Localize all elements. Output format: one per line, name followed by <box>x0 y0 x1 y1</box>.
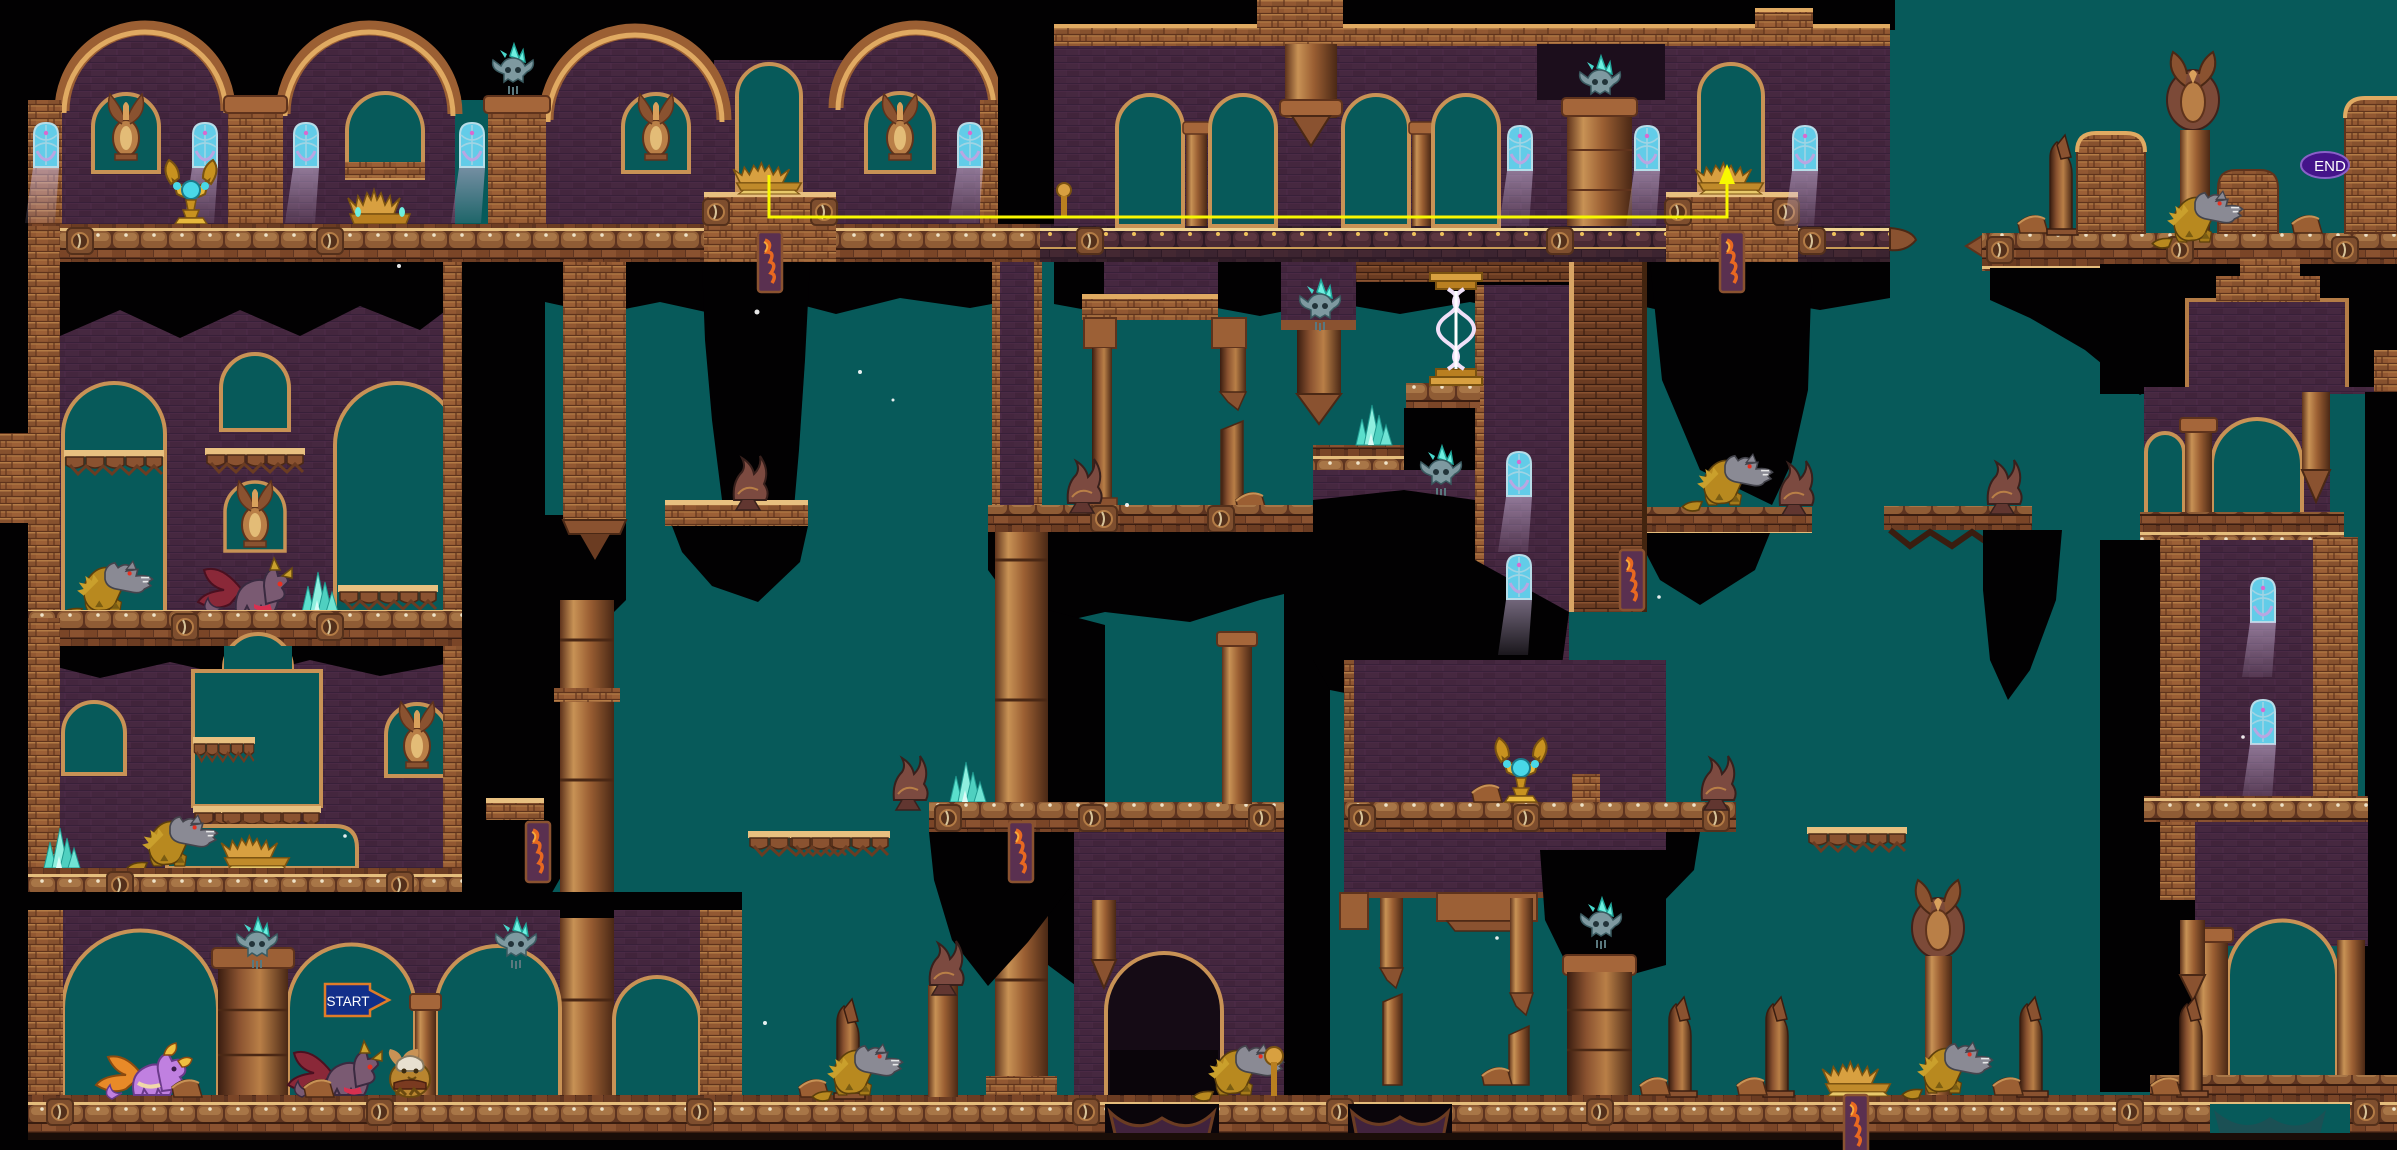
svg-text:START: START <box>326 994 369 1009</box>
svg-text:END: END <box>2314 158 2346 175</box>
